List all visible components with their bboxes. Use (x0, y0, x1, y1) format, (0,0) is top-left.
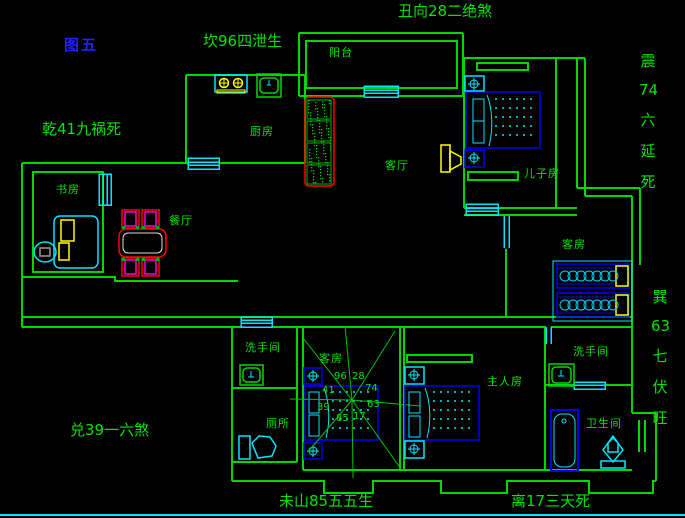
vstack-char: 旺 (651, 407, 669, 428)
kitchen-sink (257, 74, 281, 97)
cpu-tower (59, 243, 69, 260)
vstack-char: 六 (639, 109, 657, 130)
toilet-right (601, 436, 625, 468)
label-balcony: 阳台 (329, 47, 353, 58)
master-closet (407, 355, 472, 362)
vstack-char: 七 (651, 345, 669, 366)
study-chair (34, 242, 56, 262)
son-nightstand-top (465, 76, 484, 91)
corridor-window (241, 317, 272, 327)
washroom-right-window (574, 382, 605, 389)
son-closet (477, 63, 528, 70)
kitchen-walls (186, 75, 305, 163)
compass-num-e: 63 (367, 400, 380, 410)
son-bed (466, 92, 540, 148)
label-guest-room-upper: 客房 (562, 239, 586, 250)
vstack-char: 74 (639, 81, 657, 99)
label-toilet: 厕所 (266, 418, 290, 429)
dining-chair (122, 258, 139, 276)
compass-room-nightstand-top (304, 368, 322, 384)
compass-num-n: 28 (352, 372, 365, 382)
fengshui-bottom-left: 兑39一六煞 (70, 423, 149, 438)
washbasin-left (240, 365, 263, 385)
label-bathroom: 卫生间 (586, 418, 622, 429)
fengshui-left: 乾41九祸死 (42, 122, 121, 137)
label-dining: 餐厅 (169, 215, 193, 226)
label-washroom-right: 洗手间 (573, 346, 609, 357)
dining-chair (122, 210, 139, 229)
vstack-char: 巽 (651, 286, 669, 307)
compass-num-s: 85 (336, 414, 349, 424)
label-washroom-left: 洗手间 (245, 342, 281, 353)
washbasin-right (549, 364, 574, 386)
label-master-room: 主人房 (487, 376, 523, 387)
compass-num-ne: 74 (365, 384, 378, 394)
fengshui-bottom-right: 离17三天死 (511, 494, 590, 509)
fengshui-right-lower: 巽 63 七 伏 旺 (651, 286, 669, 428)
guest-room-door (504, 216, 509, 248)
master-nightstand-bottom (405, 441, 424, 458)
kitchen-stove (215, 75, 247, 93)
fengshui-top-right: 丑向28二绝煞 (398, 4, 492, 19)
figure-label: 图五 (64, 38, 98, 53)
bathtub (551, 410, 578, 471)
study-window (99, 174, 111, 205)
study-desk (54, 216, 98, 268)
washroom-right-door (546, 327, 551, 344)
son-room-walls (464, 58, 585, 215)
label-guest-room-lower: 客房 (319, 353, 343, 364)
dining-table (119, 229, 166, 257)
dining-chair (142, 258, 159, 276)
vstack-char: 63 (651, 317, 669, 335)
compass-num-w: 39 (317, 403, 330, 413)
floorplan-drawing (0, 0, 685, 518)
compass-num-nw: 41 (322, 386, 335, 396)
label-son-room: 儿子房 (524, 168, 560, 179)
vstack-char: 伏 (651, 376, 669, 397)
fengshui-bottom-center: 未山85五五生 (279, 494, 373, 509)
kitchen-window (188, 158, 219, 169)
guest-twin-beds (553, 261, 632, 321)
compass-num-nnw: 96 (334, 372, 347, 382)
label-kitchen: 厨房 (250, 126, 274, 137)
label-living: 客厅 (385, 160, 409, 171)
windows-doors (99, 86, 605, 389)
fengshui-right-upper: 震 74 六 延 死 (639, 50, 657, 192)
label-study: 书房 (56, 184, 80, 195)
toilet-left (239, 436, 276, 459)
compass-num-se: 17 (353, 412, 366, 422)
vstack-char: 震 (639, 50, 657, 71)
bottom-rooms-walls (232, 327, 632, 481)
master-bed (405, 386, 479, 440)
son-nightstand-bottom (465, 150, 484, 167)
dining-chair (142, 210, 159, 229)
vstack-char: 延 (639, 140, 657, 161)
son-room-window (466, 204, 498, 215)
monitor (61, 220, 74, 241)
floorplan-canvas: 图五 坎96四泄生 丑向28二绝煞 乾41九祸死 兑39一六煞 未山85五五生 … (0, 0, 685, 518)
vstack-char: 死 (639, 171, 657, 192)
plant-box (305, 97, 334, 186)
dining-chairs (122, 210, 159, 276)
son-shelf (468, 172, 518, 180)
master-nightstand-top (405, 367, 424, 384)
tv-unit (441, 145, 461, 172)
corridor-walls (22, 317, 632, 327)
fengshui-top-center: 坎96四泄生 (203, 34, 282, 49)
